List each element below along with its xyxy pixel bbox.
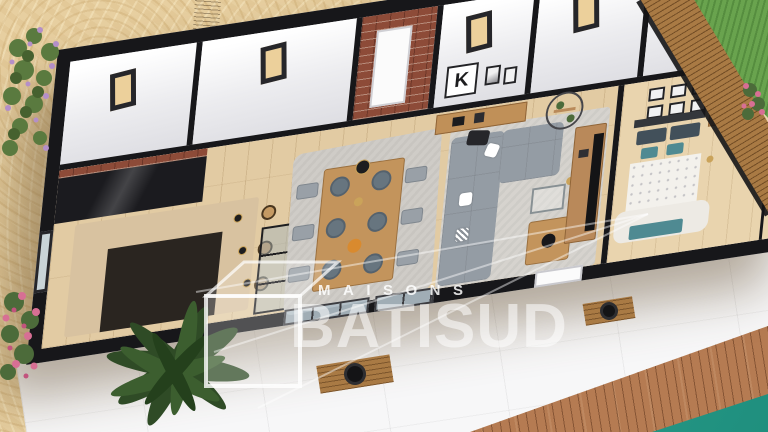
skylight: [110, 68, 136, 111]
skylight: [573, 0, 599, 33]
desk-decor: [474, 112, 485, 123]
interior-door: [369, 25, 412, 108]
framed-art: [503, 66, 518, 85]
brick-corridor: [352, 6, 437, 120]
corner-sofa-chaise: [498, 121, 565, 184]
light-lens: [599, 301, 620, 322]
green-plant: [58, 246, 288, 432]
light-lens: [342, 361, 367, 386]
gallery-frame: [648, 86, 665, 101]
purple-flowering-shrub: [0, 8, 100, 178]
scene: K: [0, 0, 768, 432]
skylight: [466, 10, 492, 53]
framed-art: [484, 65, 501, 86]
gallery-frame: [670, 83, 687, 98]
skylight: [261, 41, 287, 84]
letter-k-wall-art: K: [444, 62, 479, 98]
pink-flowers-left: [0, 272, 64, 392]
desk-chair: [466, 130, 491, 145]
pink-flowers-right: [736, 76, 768, 124]
laptop: [452, 116, 465, 127]
shelf-plant: [566, 114, 575, 123]
media-box: [578, 149, 589, 158]
black-bowl: [541, 233, 556, 249]
